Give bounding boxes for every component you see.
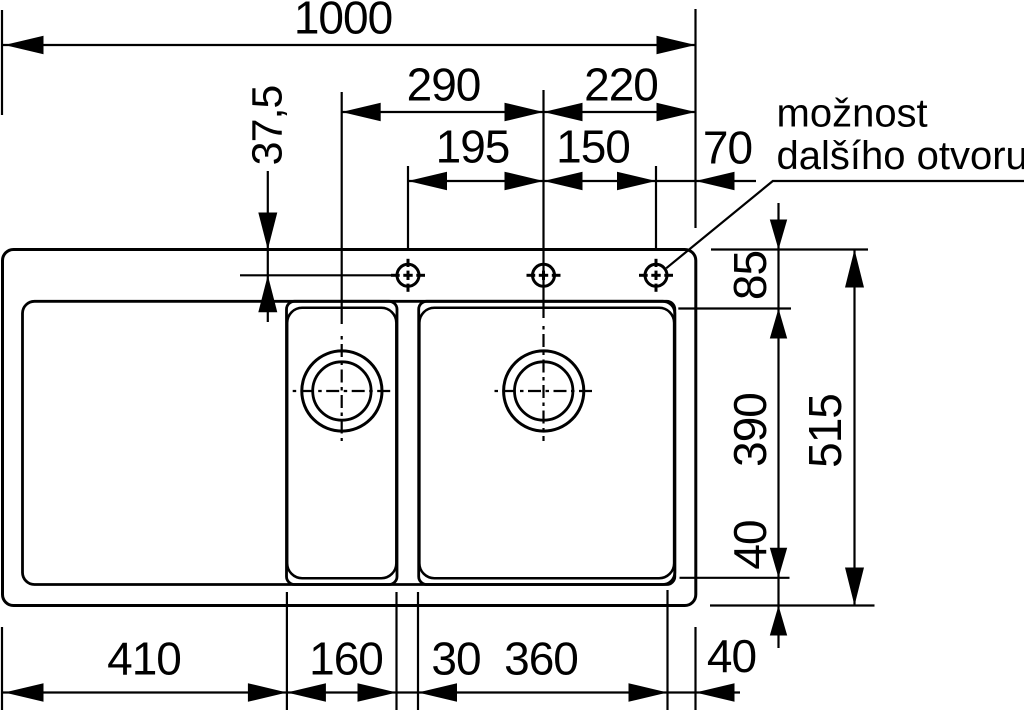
svg-text:40: 40 <box>707 630 756 682</box>
svg-text:37,5: 37,5 <box>244 86 292 166</box>
svg-text:290: 290 <box>407 59 481 111</box>
svg-text:85: 85 <box>724 251 776 300</box>
svg-text:360: 360 <box>504 633 578 685</box>
svg-text:40: 40 <box>724 520 776 569</box>
svg-text:390: 390 <box>724 393 776 467</box>
svg-text:30: 30 <box>431 633 480 685</box>
svg-text:220: 220 <box>584 59 658 111</box>
svg-text:1000: 1000 <box>294 0 392 44</box>
svg-text:dalšího otvoru: dalšího otvoru <box>777 134 1024 178</box>
svg-text:možnost: možnost <box>777 92 928 136</box>
svg-text:195: 195 <box>436 121 510 173</box>
svg-text:70: 70 <box>703 122 752 174</box>
svg-text:410: 410 <box>107 633 181 685</box>
svg-text:150: 150 <box>556 121 630 173</box>
svg-text:515: 515 <box>799 394 851 468</box>
svg-text:160: 160 <box>309 633 383 685</box>
